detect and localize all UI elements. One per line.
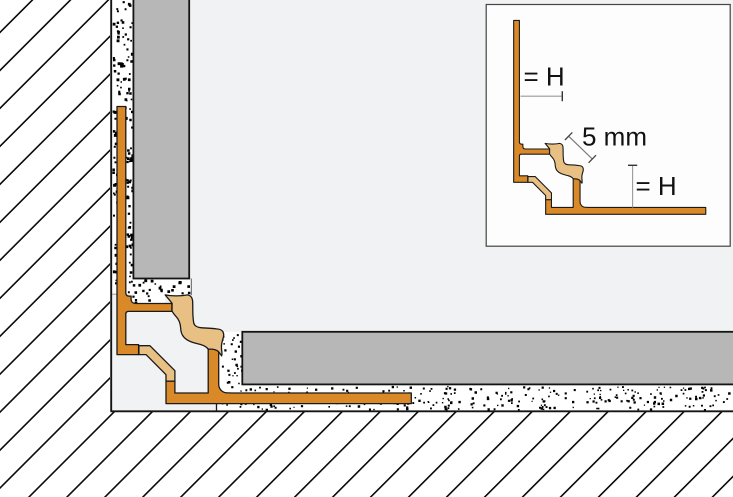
svg-text:= H: = H <box>636 171 677 201</box>
svg-text:5 mm: 5 mm <box>582 122 647 152</box>
svg-text:= H: = H <box>524 62 565 92</box>
